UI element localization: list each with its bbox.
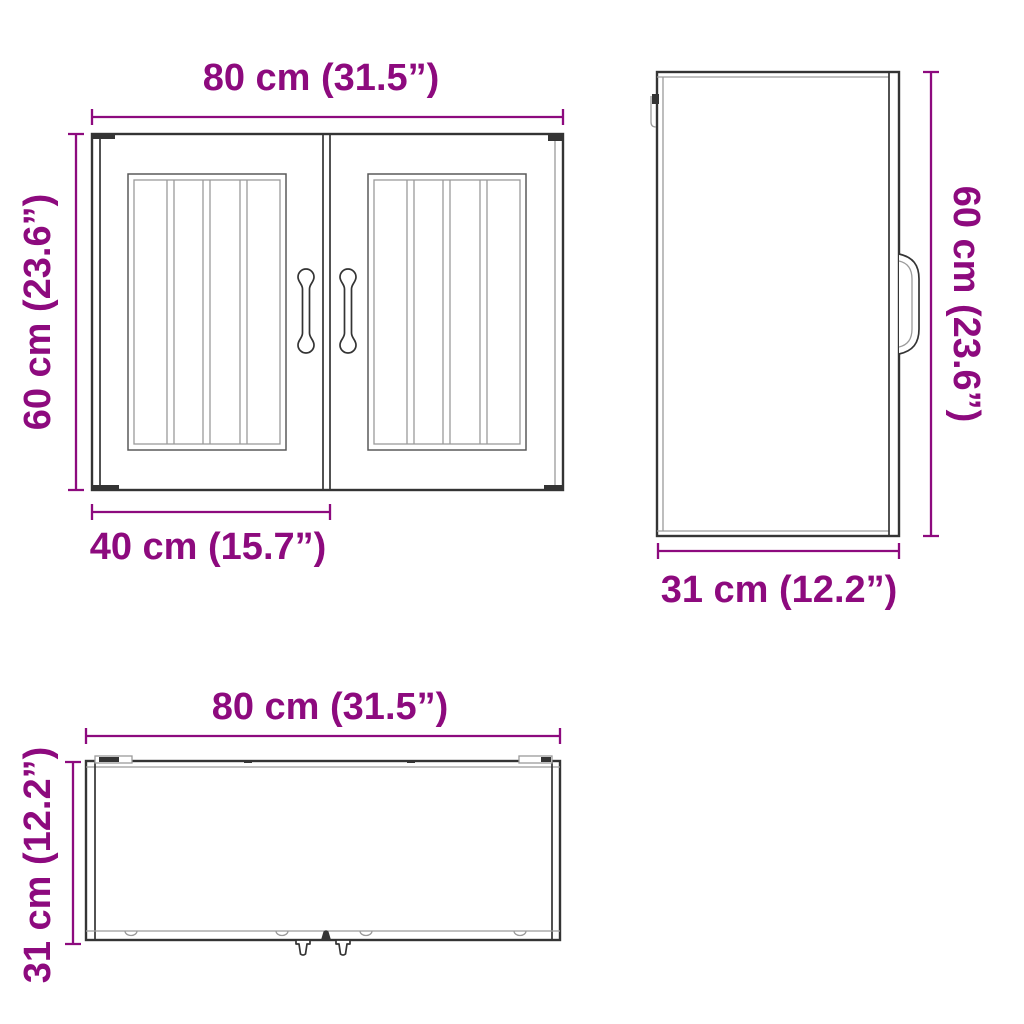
shelf-pin-mark xyxy=(244,760,252,763)
hinge-mark xyxy=(93,134,115,139)
cabinet-line-drawing xyxy=(0,0,1024,1024)
side-height-dimension-line xyxy=(923,72,939,536)
front-cabinet-outline xyxy=(92,134,563,490)
hinge-plate-right-dark xyxy=(541,757,551,762)
hinge-mark xyxy=(548,134,563,141)
side-door-handle xyxy=(899,254,919,354)
front-view xyxy=(68,109,563,520)
top-width-label: 80 cm (31.5”) xyxy=(212,688,449,726)
technical-drawing-canvas: 80 cm (31.5”) 60 cm (23.6”) 40 cm (15.7”… xyxy=(0,0,1024,1024)
front-door-width-dimension-line xyxy=(92,504,330,520)
front-height-label: 60 cm (23.6”) xyxy=(19,194,57,431)
top-cabinet-outline xyxy=(86,756,560,955)
top-depth-label: 31 cm (12.2”) xyxy=(19,747,57,984)
hinge-mark xyxy=(93,485,119,490)
top-depth-dimension-line xyxy=(65,762,81,944)
front-height-dimension-line xyxy=(68,134,84,490)
front-width-label: 80 cm (31.5”) xyxy=(203,59,440,97)
side-view xyxy=(651,72,939,559)
wall-bracket xyxy=(652,94,659,104)
side-height-label: 60 cm (23.6”) xyxy=(947,186,985,423)
side-cabinet-outline xyxy=(651,72,919,536)
front-width-dimension-line xyxy=(92,109,563,125)
top-view-handle-left xyxy=(296,940,310,955)
top-view-handle-right xyxy=(336,940,350,955)
side-depth-label: 31 cm (12.2”) xyxy=(661,571,898,609)
side-depth-dimension-line xyxy=(658,543,899,559)
shelf-pin-mark xyxy=(407,760,415,763)
hinge-plate-left-dark xyxy=(99,757,119,762)
hinge-mark xyxy=(544,485,563,490)
top-width-dimension-line xyxy=(86,728,560,744)
top-view xyxy=(65,728,560,955)
front-door-width-label: 40 cm (15.7”) xyxy=(90,528,327,566)
